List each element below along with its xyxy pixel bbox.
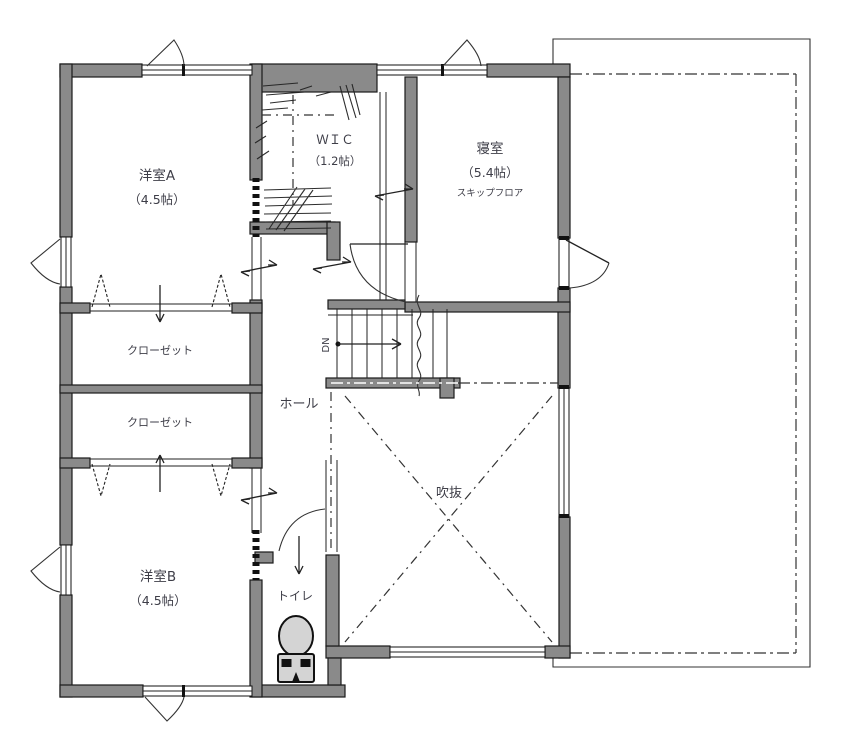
slide-arrow <box>241 488 277 504</box>
room-a-size: （4.5帖） <box>128 192 185 207</box>
slide-arrow <box>241 260 277 276</box>
window-top-bedroom <box>377 40 487 76</box>
casement-symbol <box>31 547 60 592</box>
room-b-size: （4.5帖） <box>129 593 186 608</box>
casement-symbol <box>443 40 481 66</box>
door-leaf <box>566 240 609 263</box>
window-top-room-a <box>142 40 252 76</box>
bedroom-label: 寝室 <box>477 140 504 157</box>
door-swing-arc <box>350 244 406 302</box>
room-b-label: 洋室B <box>140 568 176 585</box>
casement-symbol <box>145 697 184 721</box>
toilet-label: トイレ <box>277 589 313 603</box>
window-left-room-a <box>31 237 71 287</box>
shelf-sketch <box>255 83 360 159</box>
bedroom-size: （5.4帖） <box>461 165 518 180</box>
roof-outline <box>553 39 810 667</box>
toilet-fixture <box>278 616 314 682</box>
stair-run-line <box>336 339 402 349</box>
closet-lower-label: クローゼット <box>127 416 193 429</box>
window-bottom-room-b <box>143 685 252 721</box>
wic-size: （1.2帖） <box>309 154 362 168</box>
hall-label: ホール <box>279 397 318 412</box>
closet-upper-bifold <box>90 274 232 322</box>
door-swing-arc <box>279 509 325 551</box>
window-left-room-b <box>31 545 71 595</box>
wic-label: ＷＩＣ <box>316 132 354 147</box>
floor-plan: 洋室A （4.5帖） ＷＩＣ （1.2帖） 寝室 （5.4帖） スキップフロア … <box>0 0 856 742</box>
sliding-door-room-a <box>241 178 277 300</box>
bedroom-balcony-door <box>559 236 609 290</box>
casement-symbol <box>31 239 60 284</box>
window-void-right <box>559 385 569 518</box>
floor-plan-drawing: 洋室A （4.5帖） ＷＩＣ （1.2帖） 寝室 （5.4帖） スキップフロア … <box>0 0 856 742</box>
closet-upper-label: クローゼット <box>127 344 193 357</box>
casement-symbol <box>147 40 184 66</box>
labels: 洋室A （4.5帖） ＷＩＣ （1.2帖） 寝室 （5.4帖） スキップフロア … <box>127 132 523 608</box>
door-swing-arc <box>570 263 609 288</box>
bedroom-note: スキップフロア <box>457 188 524 199</box>
window-void-bottom <box>390 647 545 657</box>
swing-arrow <box>295 536 303 574</box>
void-label: 吹抜 <box>436 485 462 501</box>
void-area <box>331 383 558 642</box>
stairs-dn-label: DN <box>321 337 332 352</box>
room-a-label: 洋室A <box>139 167 176 184</box>
